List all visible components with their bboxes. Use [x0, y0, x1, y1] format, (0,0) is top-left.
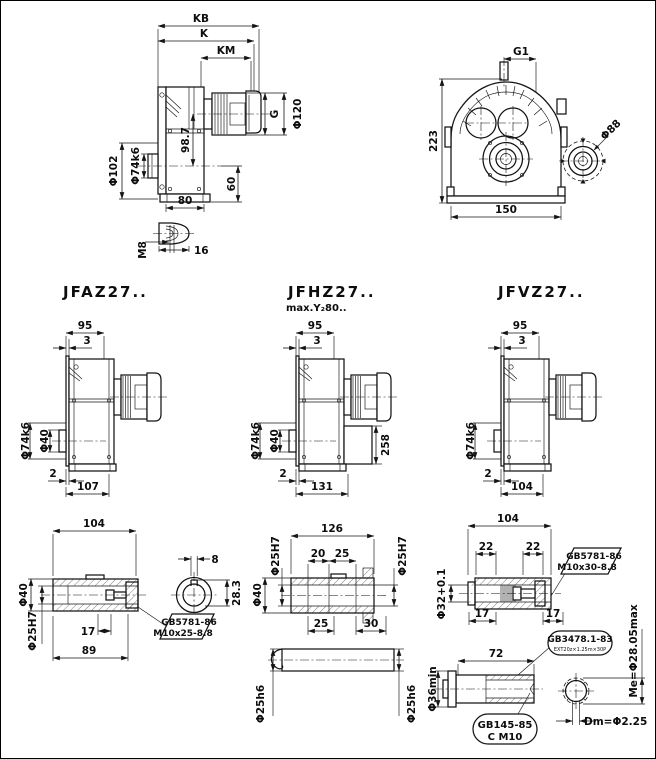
hollow-28-3: 28.3	[231, 580, 243, 606]
variant-v-95: 95	[513, 320, 528, 332]
variant-v-3: 3	[518, 335, 525, 347]
variant-v-d74: Φ74k6	[465, 422, 477, 460]
through-d25h6-right: Φ25h6	[406, 685, 418, 723]
variant-v-2: 2	[484, 468, 491, 480]
spline-104: 104	[497, 513, 519, 525]
spline-center-std: GB145-85	[478, 720, 533, 731]
variant-a-95: 95	[78, 320, 93, 332]
through-126: 126	[321, 523, 343, 535]
variant-h-131: 131	[311, 481, 333, 493]
hollow-note-std: GB5781-86	[161, 618, 217, 628]
variant-h-2: 2	[279, 468, 286, 480]
spline-17b: 17	[546, 608, 561, 620]
dim-km: KM	[217, 45, 236, 57]
spline-me: Me=Φ28.05max	[628, 604, 640, 698]
dim-kb: KB	[193, 13, 209, 25]
drawing-sheet: KB K KM G Φ120 Φ102 Φ74k6 98.7 60 80 16 …	[0, 0, 656, 759]
dim-80: 80	[178, 195, 193, 207]
variants-panel: JFAZ27.. 95 3 Φ74k6 Φ40 2 107	[11, 279, 651, 514]
dim-k: K	[200, 28, 209, 40]
hollow-note-bolt: M10x25-8.8	[153, 629, 213, 639]
hollow-89: 89	[82, 645, 97, 657]
dim-g: G	[269, 110, 281, 119]
variant-a-d74: Φ74k6	[20, 422, 32, 460]
variant-h-d74: Φ74k6	[250, 422, 262, 460]
through-d40: Φ40	[252, 583, 264, 607]
front-view-geometry	[439, 57, 608, 220]
variant-h-258: 258	[380, 434, 392, 456]
dim-98-7: 98.7	[180, 127, 192, 153]
variant-h-subtitle: max.Y₂80..	[286, 303, 347, 314]
spline-22a: 22	[479, 541, 494, 553]
through-30: 30	[364, 618, 379, 630]
hollow-shaft-geometry	[28, 531, 230, 661]
variant-h-title: JFHZ27..	[287, 283, 376, 301]
dim-m8: M8	[137, 241, 149, 259]
variant-a-3: 3	[83, 335, 90, 347]
dim-60: 60	[226, 177, 238, 192]
spline-72: 72	[489, 648, 504, 660]
hollow-key-8: 8	[211, 554, 218, 566]
spline-d32: Φ32+0.1	[436, 569, 448, 620]
side-view-panel: KB K KM G Φ120 Φ102 Φ74k6 98.7 60 80 16 …	[41, 9, 353, 271]
variant-v-geometry	[473, 333, 603, 497]
hollow-17: 17	[81, 626, 96, 638]
hollow-d25: Φ25H7	[27, 611, 39, 651]
spline-dm: Dm=Φ2.25	[584, 716, 647, 728]
through-25b: 25	[314, 618, 329, 630]
front-view-panel: G1 223 150 Φ88	[414, 29, 656, 239]
dim-flange-d88: Φ88	[598, 117, 623, 142]
variant-h-3: 3	[313, 335, 320, 347]
side-view-geometry	[119, 26, 287, 253]
variant-a-d40: Φ40	[39, 429, 51, 453]
through-shaft-geometry	[262, 536, 404, 716]
through-shaft-panel: 126 20 25 Φ25H7 Φ25H7 Φ40 25 30 Φ25h6 Φ2…	[246, 516, 446, 759]
variant-a-2: 2	[49, 468, 56, 480]
variant-a-107: 107	[77, 481, 99, 493]
spline-shaft-panel: 104 22 22 Φ32+0.1 17 17 GB5781-86 M10x30…	[426, 511, 656, 759]
spline-17a: 17	[475, 608, 490, 620]
spline-d36: Φ36min	[427, 666, 439, 712]
spline-22b: 22	[526, 541, 541, 553]
dim-key-16: 16	[194, 245, 209, 257]
dim-g1: G1	[513, 46, 529, 58]
hollow-shaft-panel: 104 Φ40 Φ25H7 17 89 8 28.3 GB5781-86 M10…	[16, 516, 251, 681]
variant-v-title: JFVZ27..	[497, 283, 585, 301]
variant-v-104: 104	[511, 481, 533, 493]
spline-spec-note: EXT20z×1.25m×30P	[554, 647, 606, 653]
through-d25-right: Φ25H7	[397, 536, 409, 576]
dim-223: 223	[428, 130, 440, 152]
through-25: 25	[335, 548, 350, 560]
spline-bolt-spec: M10x30-8.8	[557, 563, 617, 573]
through-20: 20	[311, 548, 326, 560]
spline-std-note: GB3478.1-83	[547, 635, 612, 645]
through-d25h6-left: Φ25h6	[255, 685, 267, 723]
dim-d102: Φ102	[108, 156, 120, 187]
hollow-104: 104	[83, 518, 105, 530]
dim-d120: Φ120	[292, 99, 304, 130]
variant-h-d40: Φ40	[269, 429, 281, 453]
hollow-d40: Φ40	[18, 583, 30, 607]
through-d25-left: Φ25H7	[270, 536, 282, 576]
spline-center-type: C M10	[488, 732, 523, 743]
variant-a-title: JFAZ27..	[62, 283, 148, 301]
variant-h-95: 95	[308, 320, 323, 332]
dim-d74: Φ74k6	[130, 147, 142, 185]
spline-bolt-std: GB5781-86	[566, 552, 622, 562]
dim-150: 150	[495, 204, 517, 216]
